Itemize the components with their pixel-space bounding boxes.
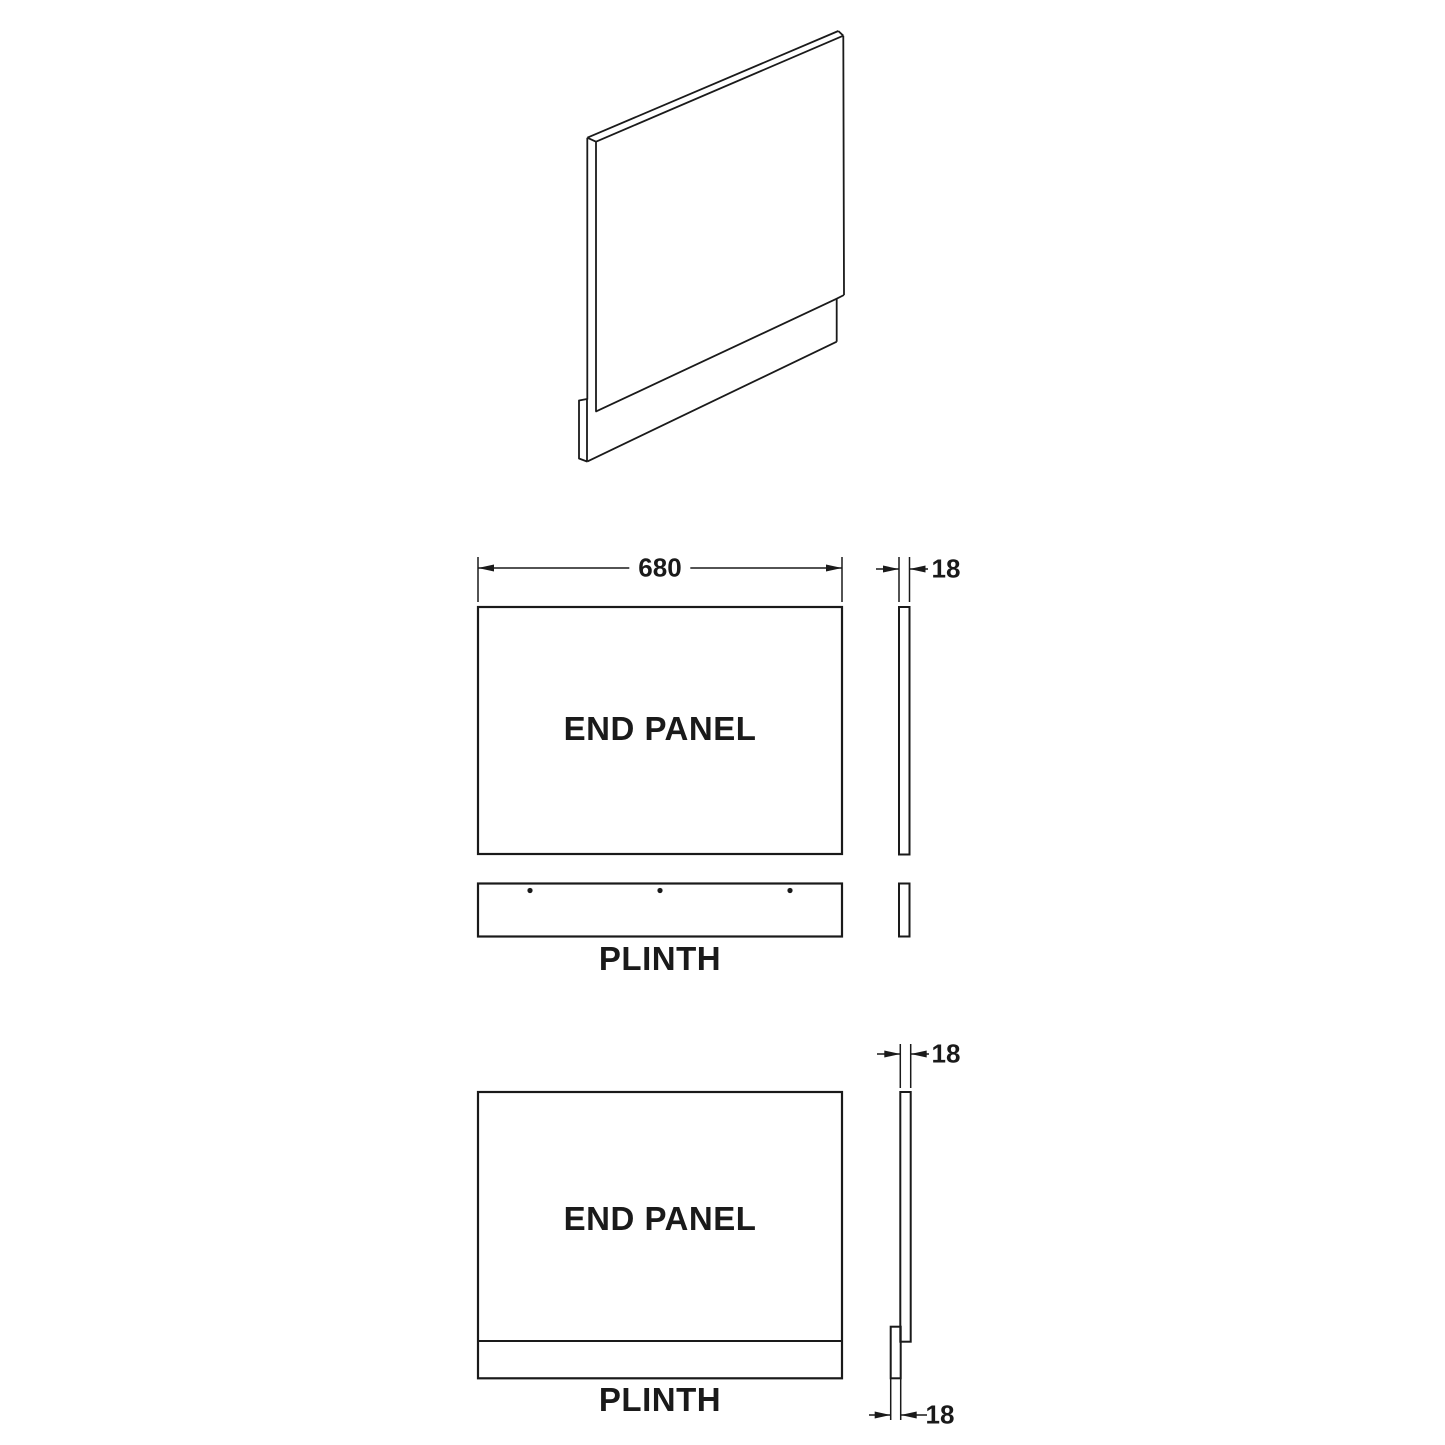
- dimension-18-middle: [876, 557, 928, 602]
- bath-end-panel-technical-drawing: 680 18 END PANEL PLINTH 18 END PANEL PLI…: [0, 0, 1445, 1445]
- arrowhead-right: [826, 565, 842, 572]
- end-panel-label-bottom: END PANEL: [564, 1200, 757, 1238]
- arrowhead-left: [478, 565, 494, 572]
- screw-hole-dot: [527, 888, 532, 893]
- arrowhead-left: [875, 1412, 891, 1419]
- plinth-label-bottom: PLINTH: [599, 1381, 721, 1419]
- arrowhead-right: [911, 1051, 927, 1058]
- arrowhead-left: [884, 1051, 900, 1058]
- dimension-18-bottom-top: [877, 1044, 929, 1088]
- dimension-value-680: 680: [629, 553, 690, 584]
- dimension-value-18-bottom-bottom: 18: [926, 1400, 955, 1431]
- end-panel-label-middle: END PANEL: [564, 710, 757, 748]
- isometric-panel-edges: [587, 31, 844, 461]
- isometric-plinth-end-tab: [579, 399, 587, 462]
- front-view-exploded: [478, 607, 910, 937]
- end-panel-side-view: [899, 607, 910, 855]
- screw-hole-dot: [657, 888, 662, 893]
- plinth-side-view-assembled: [891, 1327, 901, 1379]
- isometric-view: [579, 31, 844, 462]
- arrowhead-right: [910, 566, 926, 573]
- plinth-side-view: [899, 884, 910, 937]
- dimension-18-bottom-bottom: [869, 1379, 927, 1420]
- dimension-value-18-bottom-top: 18: [932, 1039, 961, 1070]
- arrowhead-right: [901, 1412, 917, 1419]
- end-panel-side-view-assembled: [900, 1092, 910, 1342]
- arrowhead-left: [883, 566, 899, 573]
- screw-hole-dot: [787, 888, 792, 893]
- dimension-value-18-middle: 18: [932, 554, 961, 585]
- plinth-label-middle: PLINTH: [599, 940, 721, 978]
